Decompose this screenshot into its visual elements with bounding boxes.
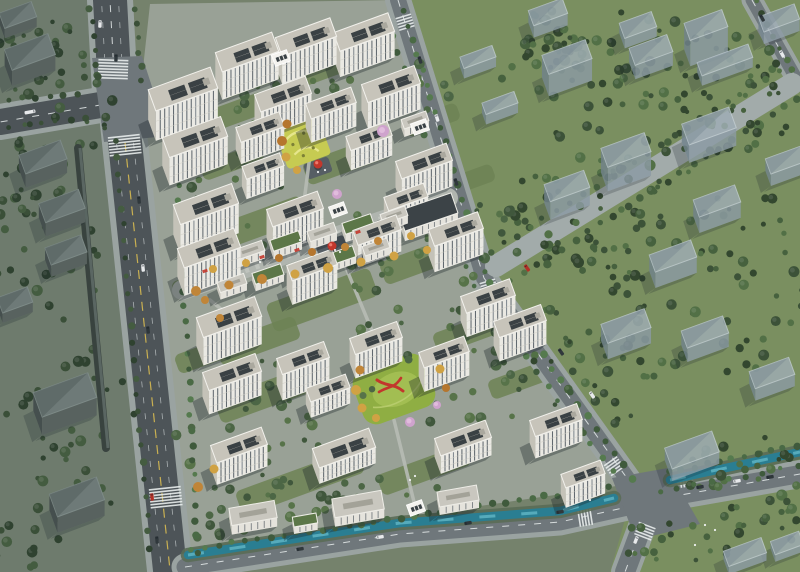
tree (750, 270, 757, 277)
tree-highlight (90, 142, 94, 146)
tree-highlight (772, 317, 776, 321)
tree (58, 68, 66, 76)
tree (519, 178, 526, 185)
tree (783, 124, 790, 131)
street-tree (459, 197, 465, 203)
street-tree (202, 545, 207, 550)
tree-highlight (286, 513, 291, 518)
tree-highlight (61, 448, 66, 453)
tree-highlight (376, 476, 380, 480)
street-tree (502, 240, 507, 245)
street-tree (48, 94, 53, 99)
street-tree (6, 125, 11, 130)
pedestrian-dot (704, 524, 706, 526)
orange-tree (277, 136, 287, 146)
tree-highlight (25, 393, 30, 398)
tree (7, 266, 14, 273)
street-tree (128, 322, 135, 329)
street-tree (658, 141, 665, 148)
tree (541, 44, 549, 52)
street-tree (133, 376, 139, 382)
orange-tree (308, 248, 316, 256)
tree (341, 479, 348, 486)
street-tree (612, 450, 618, 456)
tree (643, 91, 649, 97)
tree (779, 130, 785, 136)
orange-tree (193, 482, 203, 492)
tree-highlight (769, 195, 774, 200)
street-tree (138, 78, 144, 84)
tree-highlight (357, 326, 362, 331)
tree-highlight (20, 401, 24, 405)
tree-highlight (733, 33, 738, 38)
tree-highlight (657, 221, 662, 226)
tree (3, 411, 10, 418)
street-tree (115, 172, 121, 178)
tree (533, 174, 539, 180)
street-tree (128, 306, 133, 311)
orange-tree (210, 465, 219, 474)
street-tree (530, 495, 537, 502)
tree-highlight (760, 351, 765, 356)
tree (41, 455, 46, 460)
tree-highlight (273, 480, 278, 485)
tree (726, 250, 733, 257)
street-tree (472, 284, 477, 289)
tree-highlight (333, 492, 337, 496)
tree (567, 35, 572, 40)
street-tree (6, 98, 11, 103)
tree (654, 557, 659, 562)
tree (544, 230, 552, 238)
tree (245, 223, 251, 229)
street-tree (91, 33, 97, 39)
tree-highlight (56, 104, 61, 109)
tree (666, 520, 672, 526)
street-tree (584, 412, 591, 419)
orange-tree (283, 120, 292, 129)
tree (706, 94, 713, 101)
tree-highlight (6, 522, 10, 526)
tree-highlight (427, 418, 431, 422)
tree (741, 523, 746, 528)
tree-highlight (793, 483, 797, 487)
street-tree (540, 492, 548, 500)
tree (620, 101, 626, 107)
tree (405, 356, 413, 364)
orange-tree (358, 404, 367, 413)
tree-highlight (227, 486, 231, 490)
tree-highlight (790, 268, 795, 273)
vehicle-windshield (418, 58, 420, 59)
orange-tree (282, 153, 291, 162)
street-tree (189, 457, 195, 463)
tree (686, 170, 691, 175)
tree-highlight (207, 522, 211, 526)
street-tree (192, 531, 200, 539)
tree (593, 239, 599, 245)
street-tree (502, 499, 509, 506)
tree (399, 321, 404, 326)
tree (553, 402, 558, 407)
street-tree (121, 238, 126, 243)
tree (404, 492, 409, 497)
tree (30, 545, 37, 552)
orange-tree (201, 296, 209, 304)
tree (21, 246, 28, 253)
tree-highlight (77, 437, 82, 442)
tree (563, 336, 568, 341)
tree (774, 293, 779, 298)
tree-highlight (766, 46, 771, 51)
tree (543, 260, 551, 268)
tree-highlight (518, 204, 523, 209)
tree (260, 359, 265, 364)
tree-highlight (770, 83, 774, 87)
tree-highlight (103, 114, 107, 118)
tree (27, 121, 33, 127)
pedestrian-dot (299, 239, 301, 241)
pedestrian-dot (317, 171, 319, 173)
tree-highlight (601, 390, 605, 394)
tree (601, 247, 608, 254)
tree (369, 386, 375, 392)
tree-highlight (767, 466, 771, 470)
tree (744, 337, 750, 343)
tree-highlight (39, 477, 44, 482)
street-tree (777, 68, 782, 73)
tree (360, 392, 367, 399)
street-tree (573, 237, 581, 245)
street-tree (610, 213, 617, 220)
street-tree (22, 122, 27, 127)
tree (777, 217, 783, 223)
tree (269, 493, 276, 500)
orange-tree (216, 314, 224, 322)
tree-highlight (715, 483, 719, 487)
tree (567, 340, 572, 345)
tree (63, 457, 68, 462)
street-tree (759, 471, 765, 477)
tree (50, 20, 55, 25)
street-tree (90, 19, 95, 24)
street-tree (132, 6, 138, 12)
tree-highlight (54, 190, 58, 194)
tree (613, 282, 620, 289)
tree (449, 393, 457, 401)
tree-highlight (25, 90, 30, 95)
street-tree (398, 515, 405, 522)
tree-highlight (520, 375, 524, 379)
tree-highlight (597, 127, 601, 131)
tree-highlight (62, 363, 66, 367)
tree (743, 93, 748, 98)
tree-highlight (330, 85, 335, 90)
tree-highlight (576, 154, 581, 159)
street-tree (691, 482, 696, 487)
tree (741, 466, 749, 474)
street-tree (95, 73, 102, 80)
tree (736, 344, 744, 352)
tree (30, 196, 34, 200)
tree-highlight (720, 443, 725, 448)
pedestrian-dot (409, 479, 411, 481)
tree (284, 417, 290, 423)
street-tree (188, 547, 194, 553)
street-tree (789, 66, 796, 73)
tree (522, 53, 530, 61)
tree (232, 175, 239, 182)
tree-highlight (754, 129, 758, 133)
tree-highlight (541, 242, 545, 246)
tree-highlight (460, 278, 465, 283)
tree (469, 388, 476, 395)
tree-highlight (373, 287, 377, 291)
orange-tree (257, 274, 267, 284)
pedestrian-dot (259, 261, 261, 263)
orange-tree (390, 252, 399, 261)
street-tree (138, 442, 143, 447)
street-tree (192, 472, 197, 477)
tree (599, 80, 607, 88)
tree-highlight (395, 306, 399, 310)
tree (713, 266, 718, 271)
tree (701, 90, 707, 96)
street-tree (138, 63, 145, 70)
street-tree (136, 427, 142, 433)
street-tree (567, 389, 573, 395)
tree (509, 413, 515, 419)
street-tree (584, 228, 590, 234)
tree-highlight (543, 255, 547, 259)
tree (762, 435, 767, 440)
tree-highlight (660, 89, 665, 94)
street-tree (598, 220, 603, 225)
street-tree (742, 128, 749, 135)
tree-highlight (36, 29, 40, 33)
tree-highlight (721, 513, 725, 517)
tree (751, 140, 759, 148)
orange-tree (323, 263, 333, 273)
tree-highlight (781, 451, 785, 455)
street-tree (547, 255, 552, 260)
street-tree (135, 50, 141, 56)
tree-highlight (576, 354, 581, 359)
tree (27, 563, 34, 570)
street-tree (19, 94, 25, 100)
orange-tree (356, 366, 365, 375)
orange-tree (191, 286, 201, 296)
street-tree (432, 109, 437, 114)
tree (698, 251, 704, 257)
tree (31, 212, 36, 217)
street-tree (779, 445, 785, 451)
tree-highlight (584, 123, 588, 127)
tree (618, 9, 624, 15)
tree-highlight (637, 210, 641, 214)
street-tree (118, 206, 125, 213)
tree-highlight (673, 240, 678, 245)
tree (742, 360, 750, 368)
pedestrian-dot (334, 249, 336, 251)
tree (498, 229, 506, 237)
tree (68, 442, 74, 448)
tree-highlight (19, 206, 23, 210)
vehicle-windshield (435, 116, 437, 117)
tree-highlight (687, 482, 691, 486)
tree (777, 457, 782, 462)
tree-highlight (660, 103, 664, 107)
tree-highlight (505, 207, 510, 212)
tree (767, 91, 772, 96)
street-tree (737, 92, 742, 97)
tree (734, 273, 741, 280)
tree (787, 319, 794, 326)
street-tree (676, 170, 682, 176)
tree-highlight (615, 66, 620, 71)
orange-tree (357, 258, 366, 267)
red-sphere-highlight (315, 161, 318, 164)
tree (623, 274, 630, 281)
street-tree (625, 203, 633, 211)
tree-highlight (746, 80, 750, 84)
tree-highlight (543, 175, 547, 179)
tree (379, 272, 385, 278)
tree-highlight (415, 250, 419, 254)
street-tree (489, 500, 496, 507)
tree-highlight (631, 271, 636, 276)
tree-highlight (108, 97, 113, 102)
tree (579, 267, 586, 274)
tree (81, 74, 88, 81)
street-tree (755, 120, 760, 125)
tree-highlight (82, 467, 86, 471)
tree (650, 548, 658, 556)
tree (618, 206, 625, 213)
tree (610, 274, 617, 281)
tree (655, 185, 660, 190)
tree (592, 248, 597, 253)
vehicle-windshield (454, 180, 456, 181)
tree (60, 316, 66, 322)
street-tree (413, 51, 419, 57)
tree-highlight (51, 444, 55, 448)
tree (761, 222, 766, 227)
tree-highlight (3, 538, 8, 543)
street-tree (651, 188, 657, 194)
tree (644, 374, 650, 380)
tree (288, 502, 295, 509)
tree (625, 248, 631, 254)
street-tree (124, 274, 129, 279)
tree (3, 172, 9, 178)
street-tree (557, 376, 564, 383)
street-tree (113, 138, 119, 144)
vehicle-body (114, 54, 118, 62)
tree-highlight (441, 82, 445, 86)
street-tree (183, 318, 189, 324)
tree (668, 531, 674, 537)
orange-tree (291, 270, 300, 279)
street-tree (533, 369, 539, 375)
tree (94, 252, 101, 259)
tree-highlight (671, 18, 676, 23)
tree (278, 483, 284, 489)
street-tree (32, 95, 39, 102)
tree (1, 225, 9, 233)
tree-highlight (663, 148, 667, 152)
tree-highlight (46, 302, 50, 306)
street-tree (516, 497, 521, 502)
tree (781, 231, 786, 236)
tree-highlight (638, 524, 642, 528)
tree-highlight (593, 37, 598, 42)
tree-highlight (668, 301, 673, 306)
tree (628, 524, 636, 532)
street-tree (611, 468, 617, 474)
tree (627, 270, 632, 275)
street-tree (605, 483, 611, 489)
tree (664, 138, 672, 146)
tree (119, 378, 126, 385)
tree-highlight (747, 121, 751, 125)
street-tree (674, 486, 680, 492)
street-tree (195, 550, 201, 556)
tree-highlight (554, 43, 559, 48)
tree (658, 213, 664, 219)
street-tree (216, 543, 222, 549)
street-tree (384, 516, 391, 523)
tree (498, 75, 506, 83)
tree-highlight (21, 279, 25, 283)
street-tree (464, 264, 469, 269)
tree (772, 59, 780, 67)
street-tree (514, 233, 521, 240)
street-tree (421, 67, 426, 72)
orange-tree (351, 385, 361, 395)
street-tree (410, 37, 417, 44)
tree-highlight (94, 80, 98, 84)
street-tree (186, 412, 192, 418)
street-tree (134, 21, 140, 27)
street-tree (768, 447, 774, 453)
street-tree (125, 291, 130, 296)
tree (611, 245, 618, 252)
street-tree (755, 451, 762, 458)
tree (477, 202, 483, 208)
street-tree (482, 269, 487, 274)
street-tree (709, 478, 715, 484)
tree (629, 414, 634, 419)
tree (648, 93, 653, 98)
tree-highlight (710, 246, 714, 250)
tree (508, 63, 515, 70)
pedestrian-dot (414, 475, 416, 477)
tree-highlight (317, 492, 322, 497)
tree (734, 504, 740, 510)
orange-tree (225, 281, 234, 290)
tree (756, 64, 761, 69)
tree-highlight (691, 308, 696, 313)
tree (708, 548, 713, 553)
red-sphere-highlight (329, 243, 332, 246)
street-tree (533, 261, 540, 268)
pink-blossom-highlight (407, 419, 412, 424)
tree (632, 551, 637, 556)
street-tree (636, 194, 644, 202)
street-tree (594, 426, 600, 432)
tree-highlight (641, 548, 645, 552)
